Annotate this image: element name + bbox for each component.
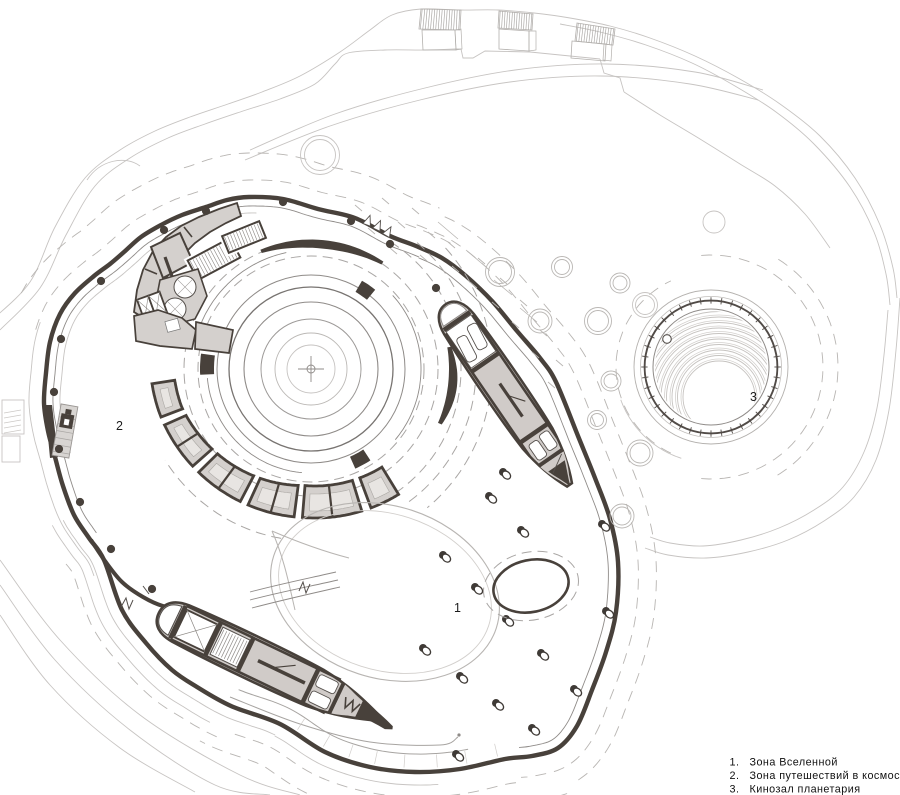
svg-text:2: 2	[116, 419, 123, 433]
svg-text:Кинозал планетария: Кинозал планетария	[750, 783, 861, 795]
svg-text:Зона путешествий в космос: Зона путешествий в космос	[750, 770, 900, 782]
svg-text:1.: 1.	[730, 757, 740, 769]
svg-text:2.: 2.	[730, 770, 740, 782]
svg-text:3.: 3.	[730, 783, 740, 795]
svg-text:3: 3	[750, 390, 757, 404]
svg-text:Зона Вселенной: Зона Вселенной	[750, 757, 838, 769]
svg-text:1: 1	[454, 601, 461, 615]
